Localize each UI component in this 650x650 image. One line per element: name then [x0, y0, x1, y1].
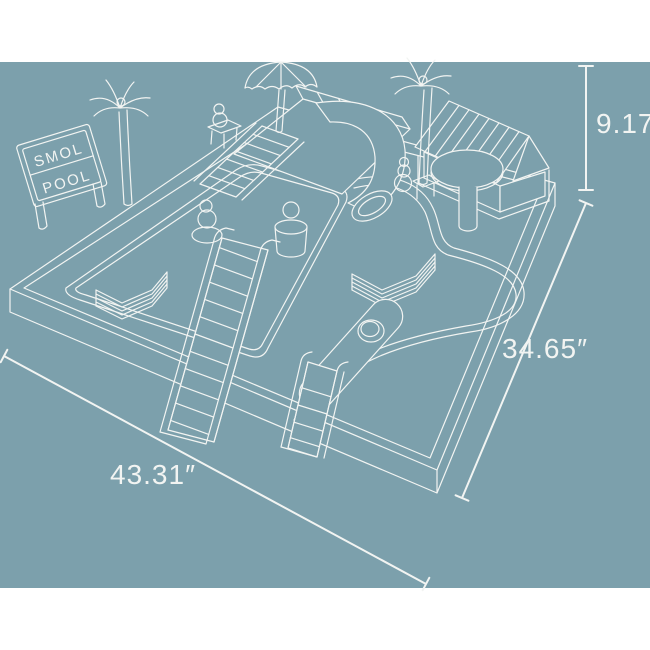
dimension-height: [579, 66, 593, 190]
pool-playset-line-drawing: SMOL POOL: [0, 0, 650, 650]
depth-dimension-label: 34.65″: [502, 333, 588, 365]
table-pedestal: [459, 187, 477, 231]
smol-pool-sign: SMOL POOL: [16, 124, 107, 229]
height-dimension-label: 9.17″: [596, 108, 650, 140]
width-dimension-label: 43.31″: [110, 459, 196, 491]
